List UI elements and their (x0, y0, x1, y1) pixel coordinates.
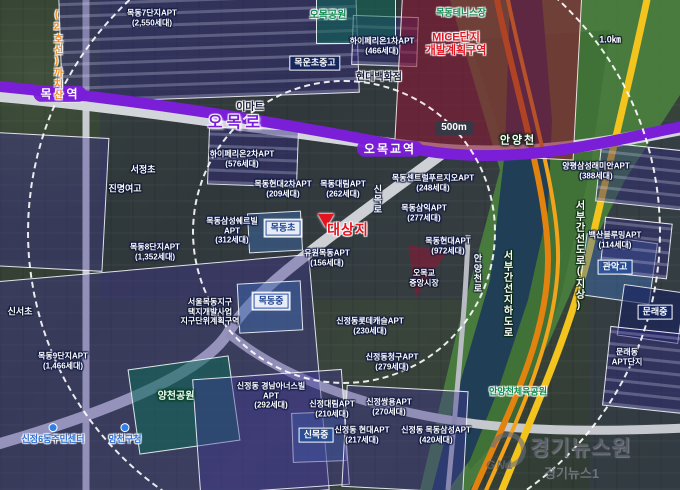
park-anyangcheon-sports: 안양천체육공원 (489, 387, 547, 398)
school-sinseocho: 신서초 (8, 307, 33, 318)
apt-mokdong-daelim: 목동대림APT (262세대) (320, 179, 365, 198)
market-omokgyo-jungang: 오목교 중앙시장 (409, 268, 438, 287)
watermark-subtitle: 경기뉴스1 (544, 463, 599, 482)
apt-yuwon-mokdong: 유원목동APT (156세대) (304, 248, 349, 267)
apt-mokdong7danji: 목동7단지APT (2,550세대) (127, 8, 177, 27)
poi-mokdong-tennis: 목동테니스장 (436, 8, 486, 19)
apt-mokdong9danji: 목동9단지APT (1,466세대) (38, 351, 88, 370)
apt-mullaedong-complex: 문래동 APT단지 (612, 347, 643, 366)
park-yangcheon: 양천공원 (158, 391, 195, 403)
road-seobu-underground: 서부간선지하도로 (500, 250, 512, 342)
road-omokro: 오목로 (208, 113, 264, 132)
school-mokun: 목운초중고 (289, 56, 340, 71)
apt-sinjeong-daelim: 신정대림APT (210세대) (309, 399, 354, 418)
site-daesangji: 대상지 (327, 222, 369, 239)
school-mokdongcho: 목동초 (266, 221, 301, 236)
zone-mice: MICE단지 개발계획구역 (426, 31, 487, 56)
school-jinmyeong: 진명여고 (108, 184, 141, 195)
poi-sinjeong6-center: 신정6동주민센터 (22, 423, 85, 445)
poi-yangcheon-guchung-marker-dot (121, 423, 130, 432)
gn1-logo-text: GN1 (486, 458, 514, 472)
map-labels: 목동7단지APT (2,550세대)오목공원목동테니스장MICE단지 개발계획구… (0, 0, 680, 490)
poi-emart: 이마트 (236, 102, 264, 114)
school-sinmokjung: 신목중 (299, 428, 334, 443)
road-anyangcheonro: 안양천로 (472, 254, 483, 297)
apt-sinjeong-lotte-castle: 신정동롯데캐슬APT (230세대) (336, 316, 404, 335)
station-omokgyo: 오목교역 (357, 141, 423, 157)
zone-seoul-mokdong: 서울목동지구 택지개발사업 지구단위계획구역 (181, 298, 240, 327)
apt-mokdong-hyundai: 목동현대APT (972세대) (425, 236, 470, 255)
school-mullaejung: 문래중 (638, 305, 673, 320)
apt-hyperion2: 하이페리온2차APT (576세대) (210, 149, 275, 168)
school-gwanakgo: 관악고 (598, 260, 633, 275)
road-sinmokro: 신목로 (372, 185, 383, 218)
apt-mokdong-samik: 목동삼익APT (277세대) (401, 203, 446, 222)
apt-sinjeong-cheonggu: 신정동청구APT (279세대) (366, 352, 419, 371)
apt-baeksan-blooming: 백산블루밍APT (114세대) (589, 230, 642, 249)
poi-sinjeong6-center-marker-dot (49, 423, 58, 432)
badge-500m: 500m (435, 121, 473, 135)
apt-sinjeong-hyundai: 신정동 현대APT (217세대) (334, 425, 389, 444)
apt-yangpyeong-raemian: 양평삼성래미안APT (388세대) (562, 161, 630, 180)
gn1-logo-icon: GN1 (488, 432, 524, 468)
map-canvas: 목동7단지APT (2,550세대)오목공원목동테니스장MICE단지 개발계획구… (0, 0, 680, 490)
road-seobu-surface: 서부간선도로(지상) (572, 200, 584, 316)
school-mokdongjung: 목동중 (254, 294, 289, 309)
apt-hyperion1: 하이페리온1차APT (466세대) (350, 36, 415, 55)
river-anyangcheon: 안양천 (500, 134, 536, 147)
apt-sinjeong-mokdong-samsung: 신정동 목동삼성APT (420세대) (401, 425, 471, 444)
poi-hyundai-dept: 현대백화점 (356, 72, 402, 84)
apt-mokdong8danji: 목동8단지APT (1,352세대) (130, 242, 180, 261)
apt-mokdong-hyundai2: 목동현대2차APT (209세대) (254, 179, 311, 198)
road-line2-kkachisan: (2호선)까치산 (50, 10, 62, 105)
apt-sinjeong-ssangyong: 신정쌍용APT (270세대) (366, 397, 411, 416)
watermark-title: 경기뉴스원 (530, 432, 632, 462)
watermark: GN1 경기뉴스원 경기뉴스1 (488, 432, 632, 482)
label-1km: 1.0㎞ (599, 35, 621, 46)
apt-central-prugio: 목동센트럴푸르지오APT (248세대) (392, 173, 474, 192)
poi-yangcheon-guchung: 양천구청 (108, 423, 141, 445)
school-seojeongcho: 서정초 (131, 165, 156, 176)
apt-samsung-cheville: 목동삼성쉐르빌 APT (312세대) (206, 217, 258, 246)
park-omok: 오목공원 (310, 10, 347, 22)
apt-gyeongnam-honorsville: 신정동 경남아너스빌 APT (292세대) (237, 382, 305, 411)
